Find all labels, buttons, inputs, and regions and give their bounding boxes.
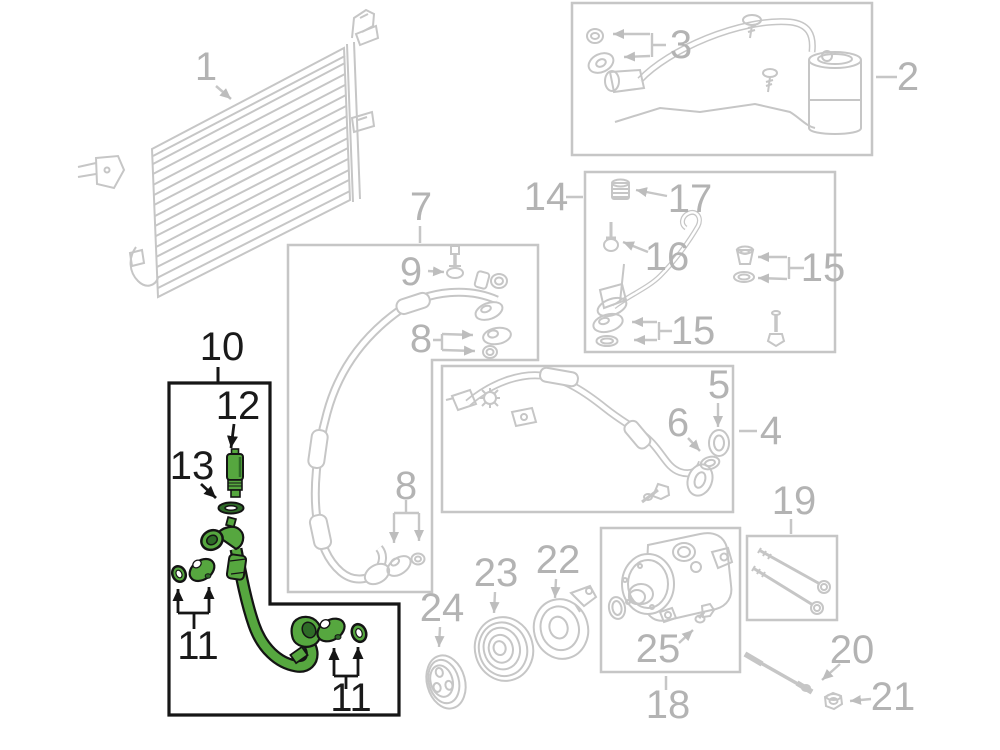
callout-label-3: 3: [670, 25, 692, 65]
callout-label-22: 22: [536, 540, 581, 580]
callout-label-19: 19: [772, 481, 817, 521]
callout-label-23: 23: [474, 553, 519, 593]
callout-arrow-25: [679, 630, 693, 643]
callout-label-18: 18: [646, 685, 691, 725]
callout-arrow-6: [688, 438, 700, 451]
callout-label-9: 9: [400, 252, 422, 292]
pressure-switch-oring-drawing: [219, 503, 244, 514]
callout-bracket-15-right: [758, 257, 804, 279]
callout-label-17: 17: [668, 179, 713, 219]
callout-label-24: 24: [420, 588, 465, 628]
callout-arrow-24: [439, 627, 440, 647]
callout-label-15-bottom: 15: [671, 311, 716, 351]
callout-label-4: 4: [760, 411, 782, 451]
condenser-drawing: [78, 10, 378, 297]
callout-label-16: 16: [645, 237, 690, 277]
callout-label-11-left: 11: [177, 626, 219, 666]
callout-label-8-upper: 8: [410, 319, 432, 359]
callout-label-2: 2: [897, 57, 919, 97]
callout-arrow-17: [636, 190, 667, 196]
callout-label-5: 5: [708, 365, 730, 405]
mount-bolts-drawing: [747, 519, 837, 620]
callout-label-13: 13: [170, 446, 215, 486]
callout-bracket-15-bottom: [632, 322, 672, 340]
callout-label-12: 12: [216, 386, 261, 426]
callout-arrow-23: [494, 592, 495, 613]
accumulator-drawing: [572, 3, 897, 155]
callout-bracket-8-upper: [433, 334, 475, 351]
callout-arrow-1: [216, 86, 231, 99]
callout-arrow-9: [428, 271, 444, 272]
clutch-pulley-drawing: [468, 611, 541, 688]
callout-arrow-21: [850, 699, 871, 701]
callout-label-15-right: 15: [801, 248, 846, 288]
callout-label-21: 21: [871, 677, 916, 717]
callout-label-10: 10: [200, 327, 245, 367]
callout-label-14: 14: [524, 177, 569, 217]
callout-label-20: 20: [830, 630, 875, 670]
callout-label-8-lower: 8: [395, 466, 417, 506]
callout-label-25: 25: [636, 629, 681, 669]
callout-label-11-right: 11: [330, 678, 372, 718]
pressure-switch-drawing: [227, 449, 243, 497]
clutch-plate-drawing: [421, 651, 472, 713]
clutch-coil-drawing: [527, 586, 596, 665]
callout-bracket-3: [613, 33, 666, 57]
callout-label-7: 7: [410, 187, 432, 227]
ac-parts-diagram: 1 2 3 4 5 6 7 8 8 9 10 11 11 12 13 14 15…: [0, 0, 1000, 750]
callout-label-6: 6: [667, 403, 689, 443]
callout-label-1: 1: [195, 47, 217, 87]
